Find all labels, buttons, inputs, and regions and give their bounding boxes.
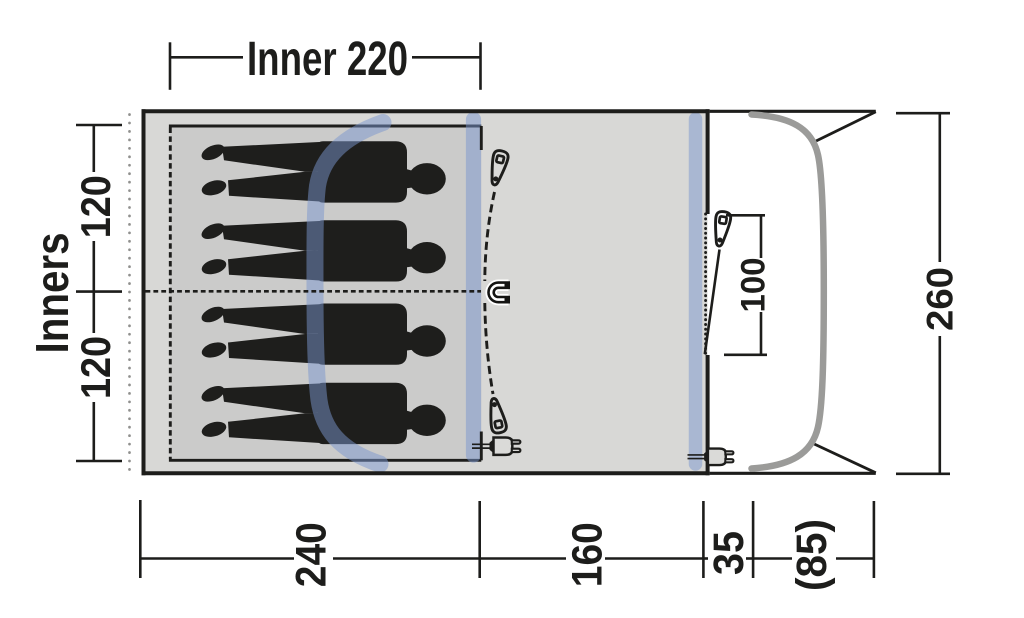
svg-text:Inners: Inners: [26, 233, 78, 354]
svg-text:260: 260: [919, 267, 960, 331]
svg-text:120: 120: [72, 175, 119, 238]
svg-text:35: 35: [705, 531, 753, 575]
svg-text:240: 240: [288, 522, 336, 587]
svg-text:120: 120: [72, 336, 119, 399]
svg-text:100: 100: [735, 258, 773, 313]
svg-text:(85): (85): [788, 519, 836, 591]
svg-text:Inner 220: Inner 220: [247, 33, 408, 86]
svg-text:160: 160: [563, 522, 611, 587]
